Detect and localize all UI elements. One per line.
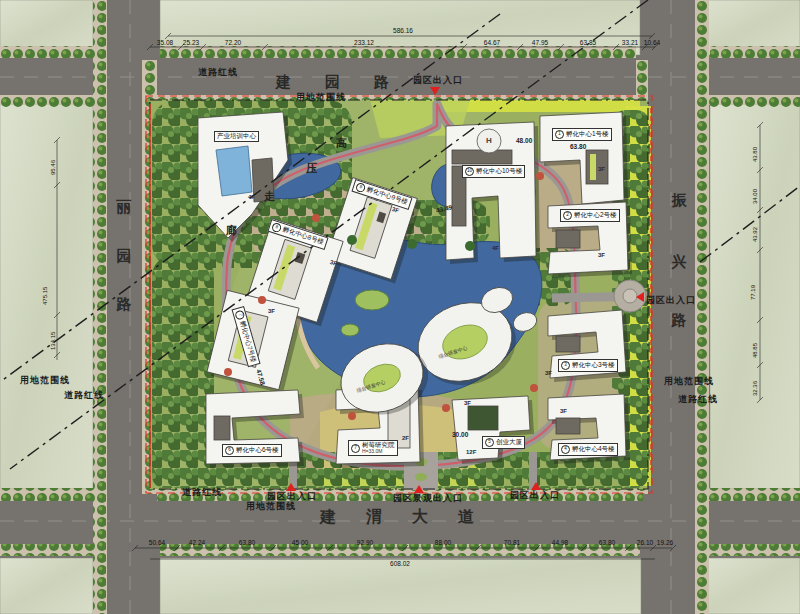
- site-plan-svg: [0, 0, 800, 614]
- site-plan-canvas: 建园路 建渭大道 丽园路 振兴路 道路红线 用地范围线 用地范围线 道路红线 用…: [0, 0, 800, 614]
